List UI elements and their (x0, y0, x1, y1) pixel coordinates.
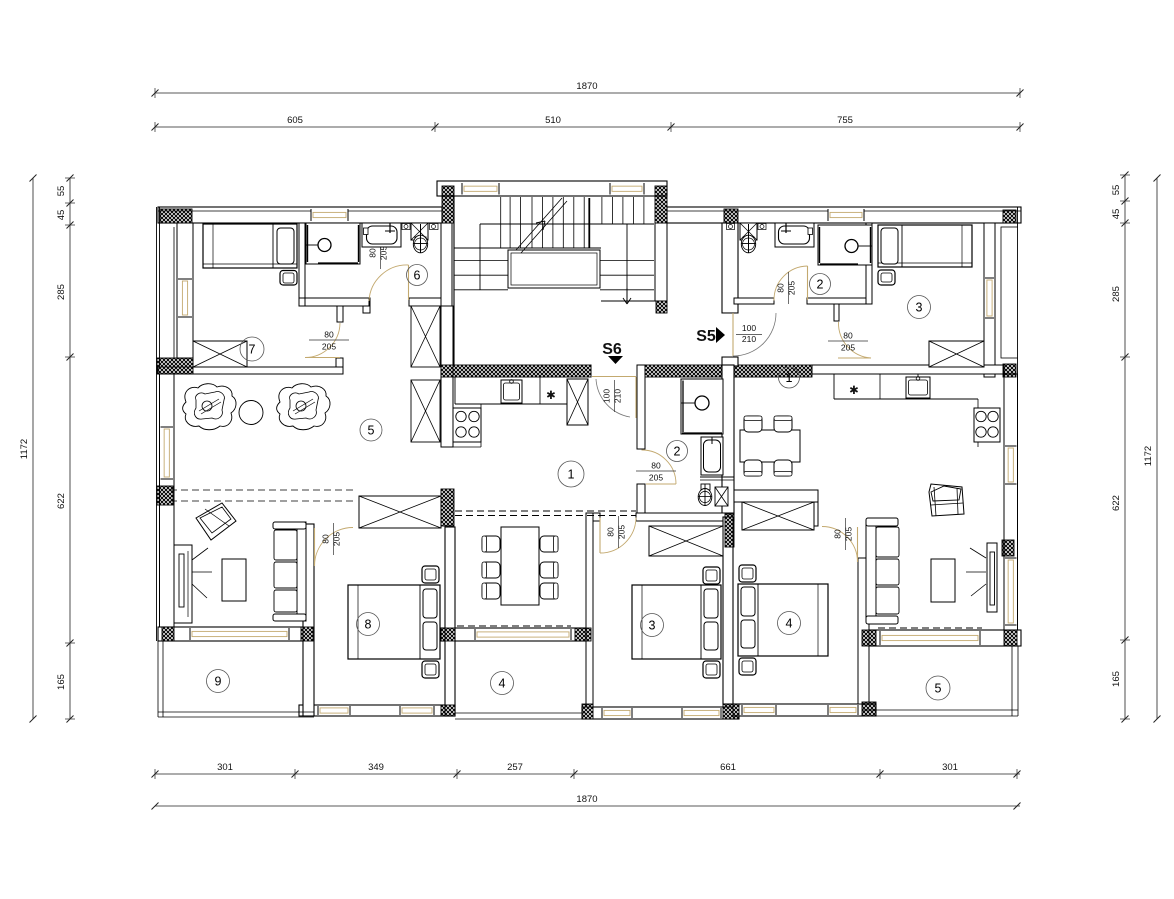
svg-text:100: 100 (602, 389, 612, 403)
svg-text:205: 205 (379, 246, 389, 260)
svg-text:80: 80 (368, 248, 378, 258)
svg-text:205: 205 (332, 532, 342, 546)
svg-text:257: 257 (507, 762, 523, 773)
svg-text:205: 205 (617, 525, 627, 539)
svg-text:80: 80 (651, 461, 661, 471)
svg-text:510: 510 (545, 115, 561, 126)
svg-text:S6: S6 (602, 341, 622, 358)
svg-text:622: 622 (1111, 495, 1122, 511)
svg-text:205: 205 (841, 343, 855, 353)
svg-text:7: 7 (249, 342, 256, 356)
svg-text:1870: 1870 (576, 794, 597, 805)
svg-text:45: 45 (56, 210, 67, 221)
svg-text:1870: 1870 (576, 81, 597, 92)
svg-text:80: 80 (324, 330, 334, 340)
svg-text:205: 205 (844, 527, 854, 541)
svg-text:285: 285 (56, 284, 67, 300)
svg-text:4: 4 (786, 616, 793, 630)
svg-text:165: 165 (56, 674, 67, 690)
svg-text:285: 285 (1111, 286, 1122, 302)
svg-text:1: 1 (786, 371, 793, 385)
svg-text:80: 80 (606, 527, 616, 537)
svg-text:3: 3 (649, 618, 656, 632)
svg-text:80: 80 (843, 331, 853, 341)
svg-text:1172: 1172 (1143, 446, 1154, 466)
svg-text:80: 80 (833, 529, 843, 539)
svg-text:3: 3 (916, 300, 923, 314)
svg-text:1172: 1172 (19, 439, 30, 459)
svg-text:S5: S5 (696, 328, 716, 345)
svg-text:205: 205 (649, 473, 663, 483)
svg-text:2: 2 (674, 444, 681, 458)
svg-text:6: 6 (414, 268, 421, 282)
svg-text:100: 100 (742, 323, 756, 333)
svg-text:1: 1 (568, 467, 575, 481)
svg-text:210: 210 (613, 389, 623, 403)
svg-text:622: 622 (56, 493, 67, 509)
svg-text:661: 661 (720, 762, 736, 773)
svg-text:205: 205 (787, 281, 797, 295)
svg-text:349: 349 (368, 762, 384, 773)
svg-text:✱: ✱ (849, 385, 859, 397)
svg-text:165: 165 (1111, 671, 1122, 687)
svg-text:✱: ✱ (546, 390, 556, 402)
svg-text:80: 80 (776, 283, 786, 293)
svg-text:210: 210 (742, 334, 756, 344)
svg-text:205: 205 (322, 342, 336, 352)
svg-text:4: 4 (499, 676, 506, 690)
svg-text:55: 55 (56, 186, 67, 197)
svg-text:45: 45 (1111, 209, 1122, 220)
svg-text:9: 9 (215, 674, 222, 688)
svg-text:301: 301 (217, 762, 233, 773)
svg-text:5: 5 (368, 423, 375, 437)
svg-text:755: 755 (837, 115, 853, 126)
svg-text:301: 301 (942, 762, 958, 773)
svg-text:55: 55 (1111, 185, 1122, 196)
svg-text:605: 605 (287, 115, 303, 126)
svg-text:8: 8 (365, 617, 372, 631)
svg-text:5: 5 (935, 681, 942, 695)
svg-text:80: 80 (321, 534, 331, 544)
svg-text:2: 2 (817, 277, 824, 291)
